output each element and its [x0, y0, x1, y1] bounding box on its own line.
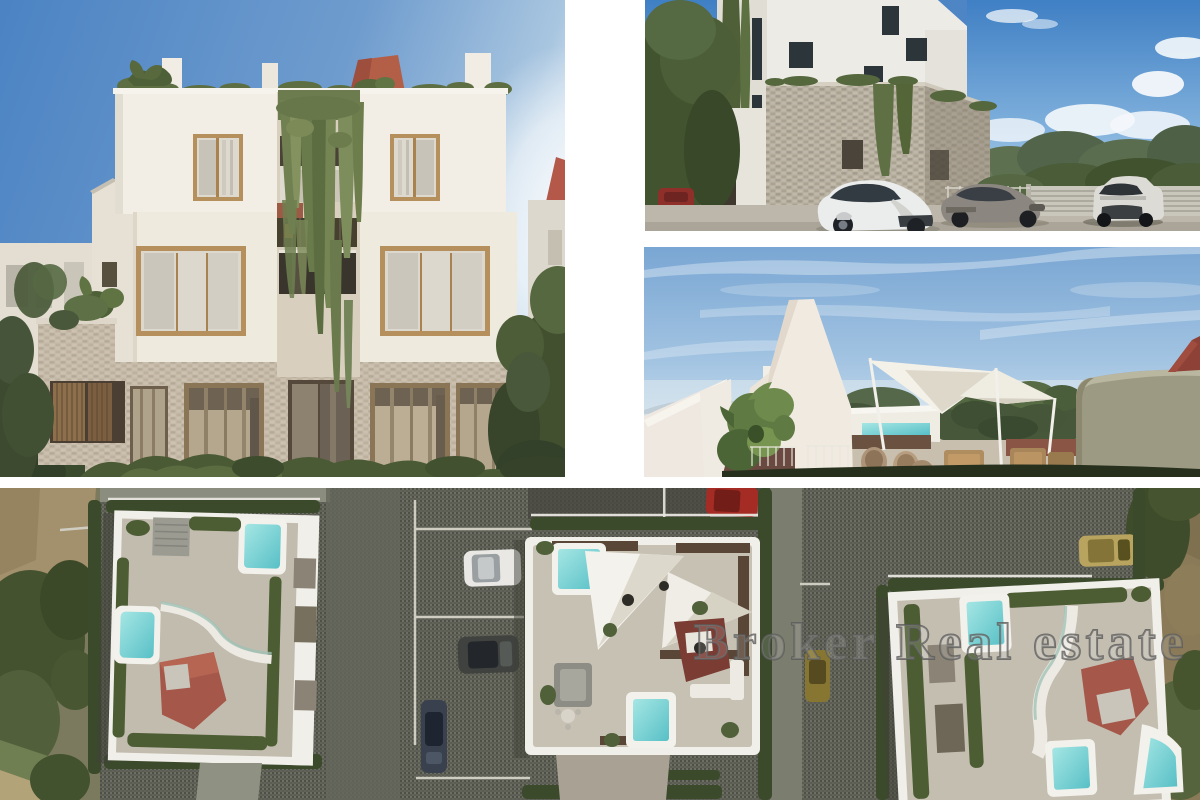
- svg-text:Broker Real estate: Broker Real estate: [694, 614, 1188, 671]
